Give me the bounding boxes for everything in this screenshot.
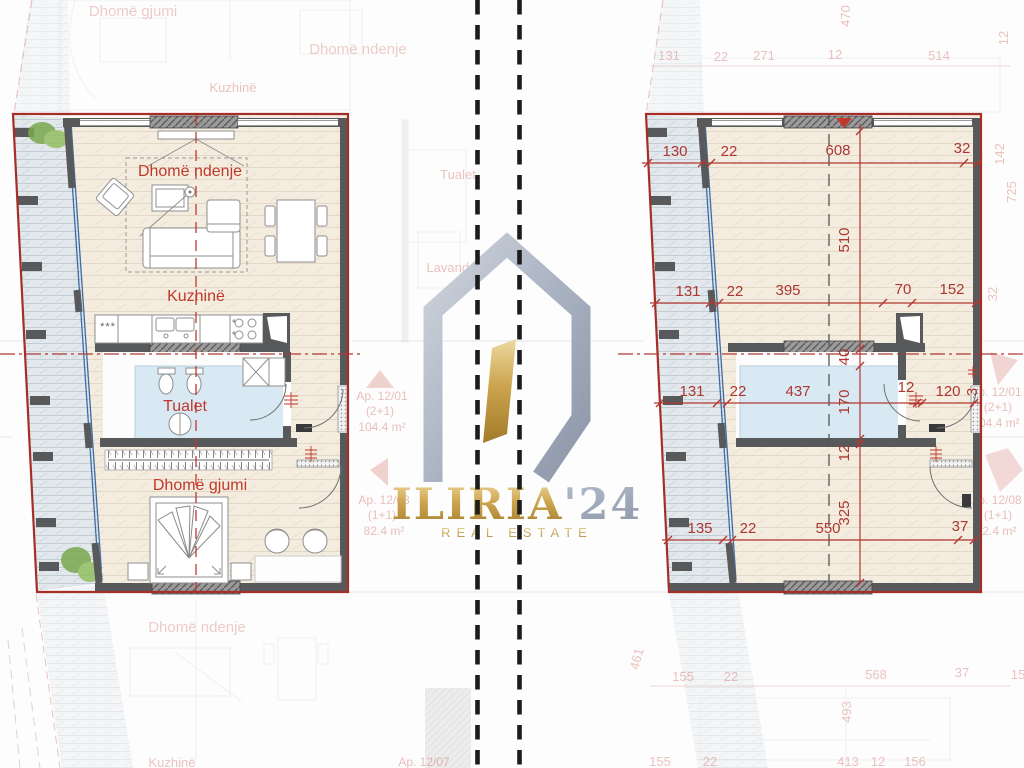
room-label-bedroom: Dhomë gjumi xyxy=(153,477,247,494)
dim-value: 22 xyxy=(740,520,757,537)
dim-value: 608 xyxy=(825,142,850,159)
bg-num: 22 xyxy=(703,754,717,768)
bg-num: 22 xyxy=(724,669,738,684)
bg-apartment-id: Ap. 12/01 xyxy=(356,389,408,403)
dim-value: 22 xyxy=(730,383,747,400)
room-label-kitchen: Kuzhinë xyxy=(167,288,225,305)
logo-tagline: REAL ESTATE xyxy=(441,525,593,540)
bg-num: 22 xyxy=(714,49,728,64)
bg-num: 15 xyxy=(1011,667,1024,682)
right-right-wall xyxy=(973,118,981,592)
brand-logo: ILIRIA'24 REAL ESTATE xyxy=(392,245,643,540)
dim-value: 120 xyxy=(935,383,960,400)
bg-num: 155 xyxy=(649,754,671,768)
bg-num: 32 xyxy=(985,287,1000,301)
dim-value: 510 xyxy=(836,227,853,252)
bg-num: 156 xyxy=(904,754,926,768)
bg-num: 12 xyxy=(828,47,842,62)
floor-plan-sheet: Dhomë gjumi Dhomë ndenje Kuzhinë Tualet … xyxy=(0,0,1024,768)
dim-value: 170 xyxy=(836,389,853,414)
bg-arrow-left xyxy=(370,458,388,486)
dim-value: 37 xyxy=(952,518,969,535)
bg-label-living-bottom: Dhomë ndenje xyxy=(148,619,246,636)
bg-num: 12 xyxy=(871,754,885,768)
bg-label-kitchen-bottom: Kuzhinë xyxy=(149,755,196,768)
bg-apartment-type: (2+1) xyxy=(366,404,394,418)
dim-value: 12 xyxy=(836,445,853,462)
left-right-wall xyxy=(340,118,348,592)
bg-apartment-type: (1+1) xyxy=(984,508,1012,522)
bg-apartment-id: Ap. 12/07 xyxy=(398,755,450,768)
dim-value: 32 xyxy=(954,140,971,157)
bg-arrow-up xyxy=(366,370,394,388)
dim-value: 12 xyxy=(898,379,915,396)
dim-value: 437 xyxy=(785,383,810,400)
nightstand-icon xyxy=(128,563,148,580)
dim-value: 135 xyxy=(687,520,712,537)
bedroom-door-leaf xyxy=(297,460,339,467)
dim-value: 22 xyxy=(727,283,744,300)
dim-value: 395 xyxy=(775,282,800,299)
bg-num: 271 xyxy=(753,48,775,63)
bg-num: 514 xyxy=(928,48,950,63)
bg-label-bedroom: Dhomë gjumi xyxy=(89,3,177,20)
bg-num: 493 xyxy=(839,701,854,723)
bg-num: 155 xyxy=(672,669,694,684)
bed-icon xyxy=(150,497,228,583)
bg-label-living-top: Dhomë ndenje xyxy=(309,41,407,58)
hob-label: *** xyxy=(100,321,116,333)
bg-num: 413 xyxy=(837,754,859,768)
bg-apartment-area: 104.4 m² xyxy=(358,420,405,434)
logo-wordmark: ILIRIA'24 xyxy=(392,480,643,530)
bg-apartment-type: (2+1) xyxy=(984,400,1012,414)
bg-num: 470 xyxy=(838,5,853,27)
washing-machine-icon xyxy=(243,358,285,386)
dim-value: 152 xyxy=(939,281,964,298)
kitchen-counter: *** xyxy=(95,313,290,347)
dim-value: 22 xyxy=(721,143,738,160)
floor-plan-canvas: Dhomë gjumi Dhomë ndenje Kuzhinë Tualet … xyxy=(0,0,1024,768)
dim-value: 70 xyxy=(895,281,912,298)
dim-value: 3 xyxy=(964,388,981,396)
dim-value: 130 xyxy=(662,143,687,160)
bg-num: 37 xyxy=(955,665,969,680)
logo-year: '24 xyxy=(563,480,642,530)
bg-num: 142 xyxy=(992,143,1007,165)
bedroom-mat xyxy=(255,556,341,582)
bg-label-bath: Tualet xyxy=(440,167,476,182)
bg-num: 131 xyxy=(658,48,680,63)
dim-value: 131 xyxy=(679,383,704,400)
bg-num: 568 xyxy=(865,667,887,682)
bg-num: 725 xyxy=(1004,181,1019,203)
bg-label-kitchen-top: Kuzhinë xyxy=(210,80,257,95)
dim-value: 325 xyxy=(836,500,853,525)
door-leaf xyxy=(962,494,971,507)
left-bedroom-wall xyxy=(100,438,297,447)
nightstand-icon xyxy=(231,563,251,580)
bg-num: 12 xyxy=(996,31,1011,45)
dim-value: 40 xyxy=(836,349,853,366)
dim-value: 131 xyxy=(675,283,700,300)
bg-arrow xyxy=(990,352,1018,385)
logo-gold-bar-icon xyxy=(483,339,516,443)
room-label-bath: Tualet xyxy=(163,398,207,415)
bg-num: 461 xyxy=(627,646,647,671)
room-label-living: Dhomë ndenje xyxy=(138,163,242,180)
